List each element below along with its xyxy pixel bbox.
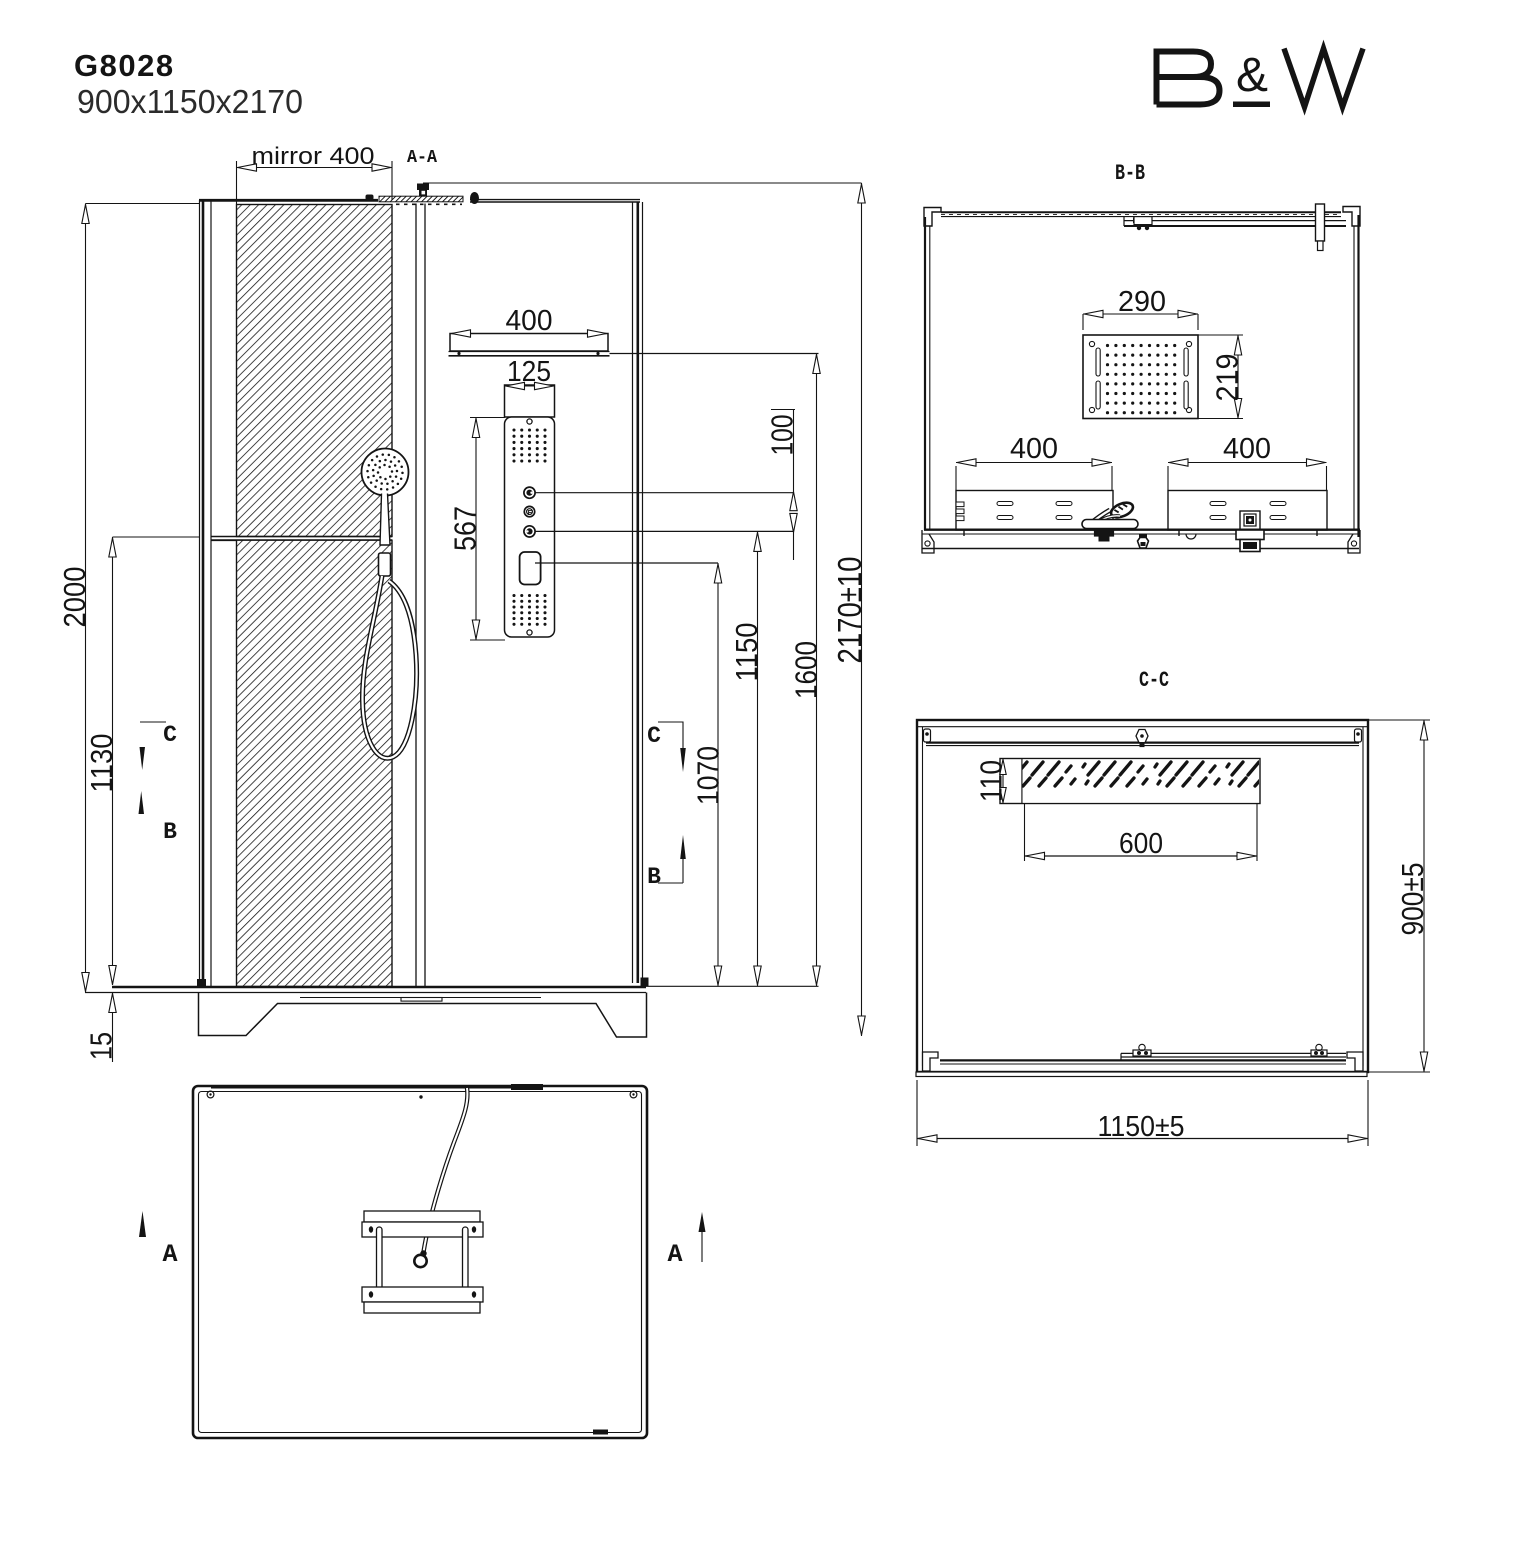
svg-text:C: C xyxy=(647,723,661,749)
svg-text:C-C: C-C xyxy=(1139,668,1169,693)
svg-text:A-A: A-A xyxy=(407,148,437,168)
svg-text:C: C xyxy=(163,722,177,748)
svg-text:1130: 1130 xyxy=(84,734,119,793)
svg-text:125: 125 xyxy=(507,356,551,388)
svg-text:600: 600 xyxy=(1119,828,1163,860)
svg-text:400: 400 xyxy=(1010,433,1058,465)
svg-text:mirror 400: mirror 400 xyxy=(252,143,375,170)
svg-text:A: A xyxy=(162,1240,177,1269)
svg-text:2170±10: 2170±10 xyxy=(831,557,868,664)
svg-text:1150: 1150 xyxy=(729,623,764,682)
svg-text:15: 15 xyxy=(84,1032,119,1060)
svg-text:G8028: G8028 xyxy=(74,48,175,83)
svg-text:900±5: 900±5 xyxy=(1395,863,1430,936)
svg-text:2000: 2000 xyxy=(57,567,92,628)
svg-text:567: 567 xyxy=(448,506,483,551)
svg-text:B: B xyxy=(163,819,177,845)
svg-text:&: & xyxy=(1236,49,1268,102)
svg-text:1150±5: 1150±5 xyxy=(1098,1111,1185,1143)
svg-text:1070: 1070 xyxy=(691,746,726,805)
svg-text:219: 219 xyxy=(1210,354,1245,402)
svg-text:400: 400 xyxy=(506,305,553,337)
svg-text:400: 400 xyxy=(1223,433,1271,465)
svg-text:A: A xyxy=(667,1240,682,1269)
svg-text:B-B: B-B xyxy=(1115,161,1145,186)
svg-text:900x1150x2170: 900x1150x2170 xyxy=(77,83,303,120)
svg-text:110: 110 xyxy=(974,760,1009,802)
svg-text:B: B xyxy=(647,864,661,890)
svg-text:100: 100 xyxy=(765,415,800,456)
svg-text:290: 290 xyxy=(1118,286,1166,318)
svg-text:F: F xyxy=(528,510,533,517)
svg-text:1600: 1600 xyxy=(789,641,824,699)
